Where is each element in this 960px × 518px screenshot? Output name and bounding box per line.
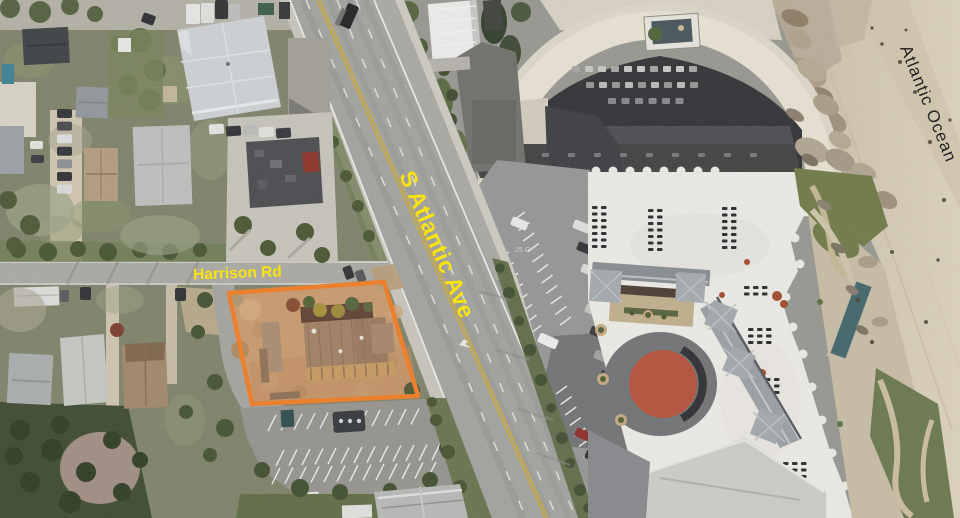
svg-text:25 G: 25 G <box>515 247 530 254</box>
